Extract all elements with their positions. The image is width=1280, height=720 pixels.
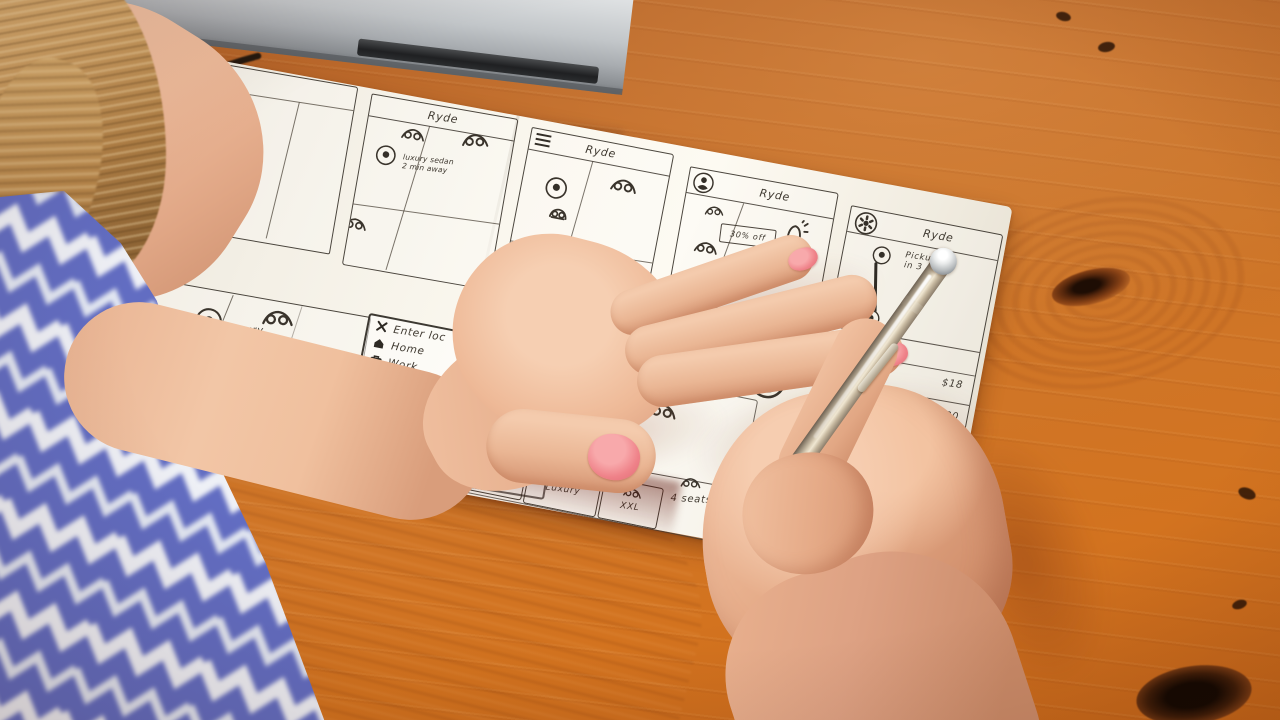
location-pin-icon (542, 173, 571, 202)
car-icon (342, 213, 369, 232)
close-icon (375, 319, 389, 333)
app-title: Ryde (427, 109, 459, 126)
car-icon (460, 130, 491, 148)
note-text: luxury sedan2 min away (402, 153, 475, 177)
car-icon (703, 203, 725, 217)
car-icon (399, 124, 427, 143)
car-icon (608, 174, 640, 196)
home-icon (372, 336, 387, 350)
app-title: Ryde (759, 186, 791, 203)
profile-icon (691, 170, 717, 196)
location-pin-icon (373, 142, 400, 169)
photo-scene: Ryde luxury sedan2 min away Ryde (0, 0, 1280, 720)
car-icon (260, 306, 295, 328)
car-icon (692, 237, 720, 256)
app-title: Ryde (585, 143, 617, 161)
map-road (353, 203, 499, 225)
app-title: Ryde (922, 227, 954, 245)
hamburger-menu-icon (535, 133, 552, 148)
car-front-icon (546, 200, 572, 223)
